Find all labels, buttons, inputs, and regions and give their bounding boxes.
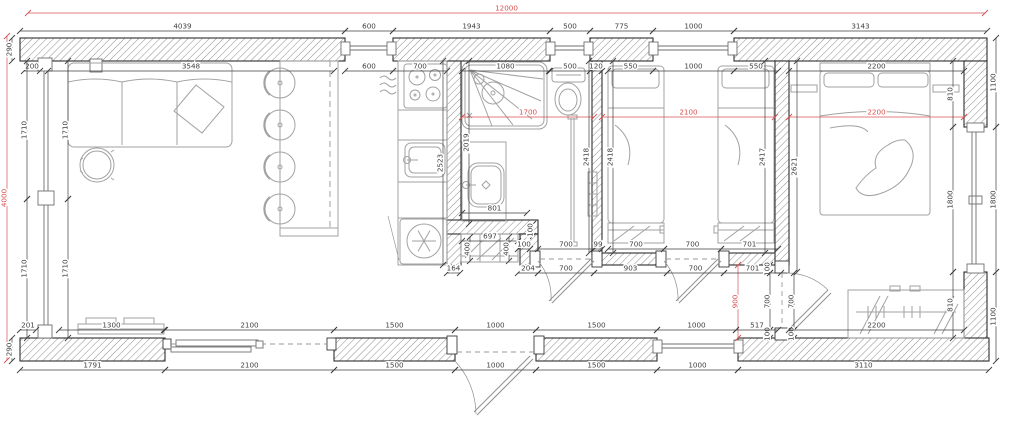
dim-label: 400 xyxy=(502,242,511,256)
dim-label: 2621 xyxy=(790,157,799,175)
dimension: 500 xyxy=(547,22,593,35)
dimension-red: 12000 xyxy=(25,4,988,17)
dim-label: 1000 xyxy=(687,321,706,330)
dim-label: 700 xyxy=(689,264,703,273)
dimension: 164 xyxy=(444,264,463,277)
dim-label: 1710 xyxy=(20,120,29,139)
dim-label: 700 xyxy=(629,240,643,249)
dim-label: 120 xyxy=(589,62,603,71)
dimension-red: 4000 xyxy=(0,33,10,363)
dimension: 700 xyxy=(535,240,597,253)
dim-label: 775 xyxy=(615,22,629,31)
dimension: 700 xyxy=(661,240,724,253)
top-window-2 xyxy=(546,42,593,55)
bar-counter xyxy=(280,61,338,236)
snowflake-icon xyxy=(412,231,436,252)
floor-plan-drawing: 1200040001700210022009004039600194350077… xyxy=(0,0,1024,432)
dimension: 1000 xyxy=(650,22,737,35)
dimension: 4039 xyxy=(17,22,348,35)
dim-label: 600 xyxy=(362,22,376,31)
dimension: 1500 xyxy=(331,361,458,374)
walls xyxy=(20,38,989,361)
top-window-1 xyxy=(341,42,396,55)
dimension: 100 xyxy=(763,262,774,276)
dimension: 2019 xyxy=(462,58,473,227)
dim-label: 290 xyxy=(5,42,14,56)
dimension-red: 2100 xyxy=(599,108,778,121)
dimension: 290 xyxy=(5,35,16,64)
dimension: 1300 xyxy=(56,321,167,334)
dimension: 1000 xyxy=(654,361,741,374)
dim-label: 1000 xyxy=(486,321,505,330)
dim-label: 1791 xyxy=(83,361,101,370)
top-wall-segment xyxy=(393,38,550,61)
column xyxy=(90,59,102,72)
dim-label: 1500 xyxy=(385,321,404,330)
floor-plan-canvas: 1200040001700210022009004039600194350077… xyxy=(0,0,1024,432)
dimension: 201 xyxy=(17,321,39,334)
dim-label: 700 xyxy=(763,294,772,308)
furniture xyxy=(68,61,964,338)
dim-label: 1800 xyxy=(946,190,955,209)
bottom-wall-segment xyxy=(334,338,455,361)
bottom-wall-segment xyxy=(536,338,657,361)
dimension: 290 xyxy=(5,335,16,364)
dimension: 700 xyxy=(787,270,798,333)
dim-label: 697 xyxy=(483,232,497,241)
dimension: 1710 xyxy=(61,58,72,202)
dim-label: 801 xyxy=(488,204,502,213)
dim-label: 99 xyxy=(593,240,603,249)
dim-label: 600 xyxy=(362,62,376,71)
dim-label: 290 xyxy=(5,342,14,356)
dimension: 3110 xyxy=(735,361,992,374)
dim-label: 2200 xyxy=(867,62,886,71)
dimension: 100 xyxy=(763,327,774,341)
dimension: 775 xyxy=(587,22,656,35)
left-facade-window xyxy=(38,58,102,338)
glass-partition xyxy=(568,115,577,246)
double-bed xyxy=(791,63,959,215)
steam-marks xyxy=(380,76,396,94)
dimension: 400 xyxy=(502,234,513,264)
dim-label: 1500 xyxy=(587,321,606,330)
dimension: 1710 xyxy=(61,196,72,341)
dimension: 1100 xyxy=(989,269,1000,364)
dim-label: 517 xyxy=(750,321,764,330)
dim-label: 1000 xyxy=(684,62,703,71)
dim-label: 700 xyxy=(787,294,796,308)
dim-label: 810 xyxy=(946,298,955,312)
dim-label: 550 xyxy=(624,62,638,71)
sliding-door[interactable] xyxy=(171,340,263,352)
dim-label: 2200 xyxy=(867,108,886,117)
dimension: 600 xyxy=(342,22,396,35)
dim-label: 12000 xyxy=(495,4,518,13)
dim-label: 1100 xyxy=(989,73,998,92)
dim-label: 2100 xyxy=(240,361,259,370)
pillow xyxy=(174,85,224,133)
dim-label: 400 xyxy=(463,242,472,256)
dim-label: 700 xyxy=(559,264,573,273)
dimension: 701 xyxy=(718,240,781,253)
dimension: 700 xyxy=(664,264,727,277)
dimension: 1100 xyxy=(989,35,1000,130)
dim-label: 100 xyxy=(517,240,531,249)
dim-label: 700 xyxy=(559,240,573,249)
dim-label: 2523 xyxy=(436,154,445,172)
bottom-wall-segment xyxy=(20,338,165,361)
dim-label: 4039 xyxy=(173,22,192,31)
top-wall-segment xyxy=(734,38,987,61)
dimension-red: 2200 xyxy=(786,108,967,121)
dim-label: 1710 xyxy=(20,259,29,278)
bottom-wall-segment xyxy=(738,338,989,361)
dimension: 1943 xyxy=(390,22,553,35)
dim-label: 701 xyxy=(746,264,760,273)
dim-label: 700 xyxy=(413,62,427,71)
dimension: 1710 xyxy=(20,58,31,202)
dim-label: 1500 xyxy=(587,361,606,370)
dim-label: 2019 xyxy=(462,133,471,152)
dimension: 2100 xyxy=(162,321,337,334)
dim-label: 1080 xyxy=(496,62,515,71)
dim-label: 1943 xyxy=(462,22,480,31)
dim-label: 100 xyxy=(787,327,796,341)
dim-label: 2200 xyxy=(867,321,886,330)
top-window-3 xyxy=(649,42,737,55)
dim-label: 2100 xyxy=(679,108,698,117)
dim-label: 1000 xyxy=(684,22,703,31)
right-window xyxy=(967,123,984,273)
hall-window xyxy=(653,340,743,353)
dim-label: 900 xyxy=(731,294,740,308)
dim-label: 2100 xyxy=(240,321,259,330)
dim-label: 700 xyxy=(686,240,700,249)
dim-label: 500 xyxy=(563,22,577,31)
dim-label: 1100 xyxy=(989,307,998,326)
bedroom-master-wall xyxy=(775,61,789,265)
dim-label: 100 xyxy=(526,223,535,237)
sofa xyxy=(68,63,232,147)
dim-label: 1700 xyxy=(519,108,538,117)
dimension: 1800 xyxy=(946,124,957,275)
dim-label: 701 xyxy=(743,240,757,249)
dimension-red: 900 xyxy=(731,262,742,341)
dim-label: 1800 xyxy=(989,190,998,209)
dim-label: 4000 xyxy=(0,188,9,207)
tv-bench xyxy=(78,318,164,334)
dim-label: 1000 xyxy=(688,361,707,370)
dimension: 600 xyxy=(342,62,396,75)
dimension: 1000 xyxy=(654,321,739,334)
dimension: 2418 xyxy=(582,58,593,256)
dim-label: 204 xyxy=(521,264,535,273)
dimension: 100 xyxy=(526,221,537,239)
dimension: 1500 xyxy=(533,321,660,334)
dimension: 1710 xyxy=(20,196,31,341)
dimension: 700 xyxy=(763,270,774,333)
dimension-red: 1700 xyxy=(459,108,597,121)
single-bed xyxy=(608,66,664,243)
fridge xyxy=(388,216,447,264)
dimension: 3143 xyxy=(731,22,990,35)
bath-bedroom-wall xyxy=(592,61,602,265)
dim-label: 550 xyxy=(749,62,763,71)
dim-label: 2417 xyxy=(758,148,767,166)
dim-label: 201 xyxy=(21,321,35,330)
dimension: 2100 xyxy=(162,361,337,374)
dim-label: 1710 xyxy=(61,259,70,278)
dimension: 1791 xyxy=(17,361,168,374)
dimension: 1800 xyxy=(989,124,1000,275)
dimension: 1500 xyxy=(533,361,660,374)
dim-label: 3110 xyxy=(854,361,873,370)
doors xyxy=(171,259,831,415)
dim-label: 164 xyxy=(447,264,461,273)
dim-label: 3548 xyxy=(182,62,201,71)
windows xyxy=(38,42,984,353)
dimension: 2200 xyxy=(786,62,967,75)
dim-label: 1710 xyxy=(61,120,70,139)
dimension: 801 xyxy=(459,204,530,217)
dim-label: 810 xyxy=(946,87,955,101)
shower xyxy=(462,62,547,129)
dimension: 100 xyxy=(787,327,798,341)
dim-label: 1300 xyxy=(102,321,121,330)
dimension: 810 xyxy=(946,58,957,130)
dim-label: 1500 xyxy=(385,361,404,370)
dim-label: 903 xyxy=(624,264,638,273)
dim-label: 2418 xyxy=(582,147,591,166)
dim-label: 1000 xyxy=(486,361,505,370)
dim-label: 2418 xyxy=(606,147,615,166)
dim-label: 500 xyxy=(563,62,577,71)
coffee-table xyxy=(80,148,114,182)
dim-label: 3143 xyxy=(851,22,869,31)
toilet xyxy=(552,68,585,115)
dimension: 517 xyxy=(733,321,781,334)
top-wall-segment xyxy=(20,38,345,61)
top-wall-segment xyxy=(590,38,653,61)
cooktop xyxy=(404,64,447,108)
dimension: 1500 xyxy=(331,321,458,334)
right-wall-segment xyxy=(964,61,987,127)
dimension: 1000 xyxy=(452,321,539,334)
